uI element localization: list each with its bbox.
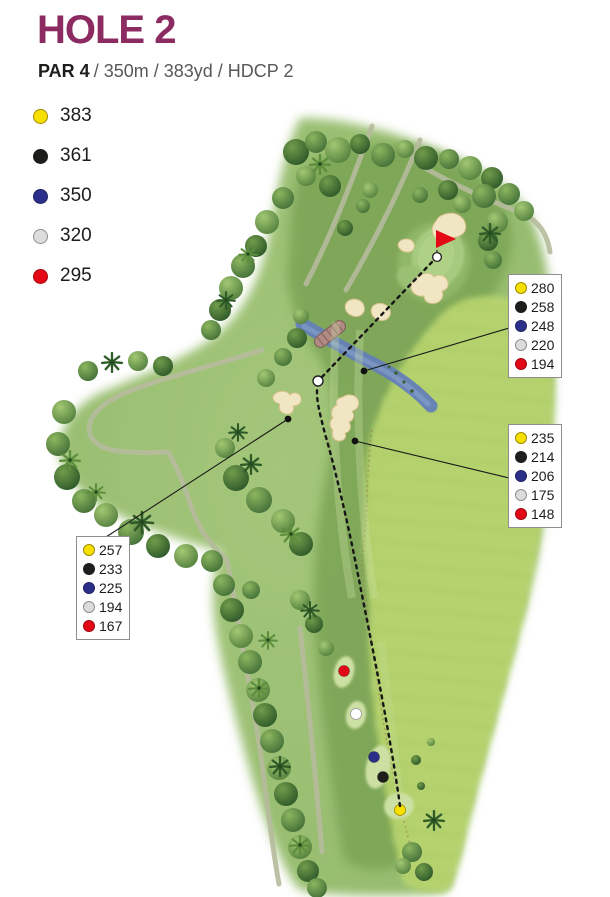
tee-dot-white (351, 709, 362, 720)
callout-distance: 194 (531, 356, 554, 372)
callout-item: 225 (83, 580, 122, 596)
tee-distance-legend: 383 361 350 320 295 (33, 105, 92, 287)
callout-distance: 248 (531, 318, 554, 334)
callout-distance: 280 (531, 280, 554, 296)
callout-item: 214 (515, 449, 554, 465)
callout-distance: 233 (99, 561, 122, 577)
bunker (345, 299, 364, 316)
tee-marker-black-icon (83, 563, 95, 575)
callout-item: 175 (515, 487, 554, 503)
callout-middle-right: 235 214 206 175 148 (508, 424, 562, 528)
legend-distance: 295 (60, 265, 92, 287)
dogleg-point-dot (313, 376, 323, 386)
callout-distance: 214 (531, 449, 554, 465)
legend-item-blue: 350 (33, 185, 92, 207)
legend-item-red: 295 (33, 265, 92, 287)
callout-item: 248 (515, 318, 554, 334)
hole-details: / 350m / 383yd / HDCP 2 (94, 61, 294, 81)
tee-marker-blue-icon (515, 320, 527, 332)
tee-marker-yellow-icon (515, 432, 527, 444)
tee-marker-white-icon (33, 229, 48, 244)
callout-item: 280 (515, 280, 554, 296)
legend-distance: 320 (60, 225, 92, 247)
tee-marker-black-icon (515, 451, 527, 463)
legend-item-white: 320 (33, 225, 92, 247)
tee-marker-white-icon (515, 489, 527, 501)
tee-marker-blue-icon (33, 189, 48, 204)
callout-item: 206 (515, 468, 554, 484)
callout-distance: 148 (531, 506, 554, 522)
tee-marker-red-icon (33, 269, 48, 284)
bunker (398, 239, 414, 252)
callout-left: 257 233 225 194 167 (76, 536, 130, 640)
page-title: HOLE 2 (37, 8, 175, 52)
legend-item-yellow: 383 (33, 105, 92, 127)
tee-marker-red-icon (515, 508, 527, 520)
hole-diagram-page: HOLE 2 PAR 4/ 350m / 383yd / HDCP 2 383 … (0, 0, 610, 897)
legend-item-black: 361 (33, 145, 92, 167)
callout-item: 235 (515, 430, 554, 446)
tee-dot-black (378, 772, 389, 783)
tee-marker-black-icon (515, 301, 527, 313)
callout-distance: 175 (531, 487, 554, 503)
callout-distance: 167 (99, 618, 122, 634)
tee-dot-red (339, 666, 350, 677)
callout-distance: 258 (531, 299, 554, 315)
callout-distance: 194 (99, 599, 122, 615)
tee-dot-blue (369, 752, 380, 763)
callout-distance: 235 (531, 430, 554, 446)
tee-marker-white-icon (83, 601, 95, 613)
callout-item: 257 (83, 542, 122, 558)
legend-distance: 383 (60, 105, 92, 127)
callout-distance: 257 (99, 542, 122, 558)
callout-item: 258 (515, 299, 554, 315)
tee-marker-black-icon (33, 149, 48, 164)
callout-upper-right: 280 258 248 220 194 (508, 274, 562, 378)
tee-marker-blue-icon (83, 582, 95, 594)
callout-item: 233 (83, 561, 122, 577)
legend-distance: 361 (60, 145, 92, 167)
tee-marker-yellow-icon (515, 282, 527, 294)
hole-info-subtitle: PAR 4/ 350m / 383yd / HDCP 2 (38, 61, 293, 82)
par-label: PAR 4 (38, 61, 90, 81)
callout-item: 167 (83, 618, 122, 634)
callout-distance: 206 (531, 468, 554, 484)
callout-item: 194 (83, 599, 122, 615)
callout-distance: 225 (99, 580, 122, 596)
bunker (371, 303, 390, 320)
callout-item: 194 (515, 356, 554, 372)
tee-marker-yellow-icon (83, 544, 95, 556)
hole-position-dot (433, 253, 442, 262)
callout-item: 220 (515, 337, 554, 353)
callout-distance: 220 (531, 337, 554, 353)
tee-marker-white-icon (515, 339, 527, 351)
legend-distance: 350 (60, 185, 92, 207)
tee-marker-yellow-icon (33, 109, 48, 124)
tee-marker-red-icon (515, 358, 527, 370)
tee-marker-red-icon (83, 620, 95, 632)
callout-item: 148 (515, 506, 554, 522)
tee-marker-blue-icon (515, 470, 527, 482)
